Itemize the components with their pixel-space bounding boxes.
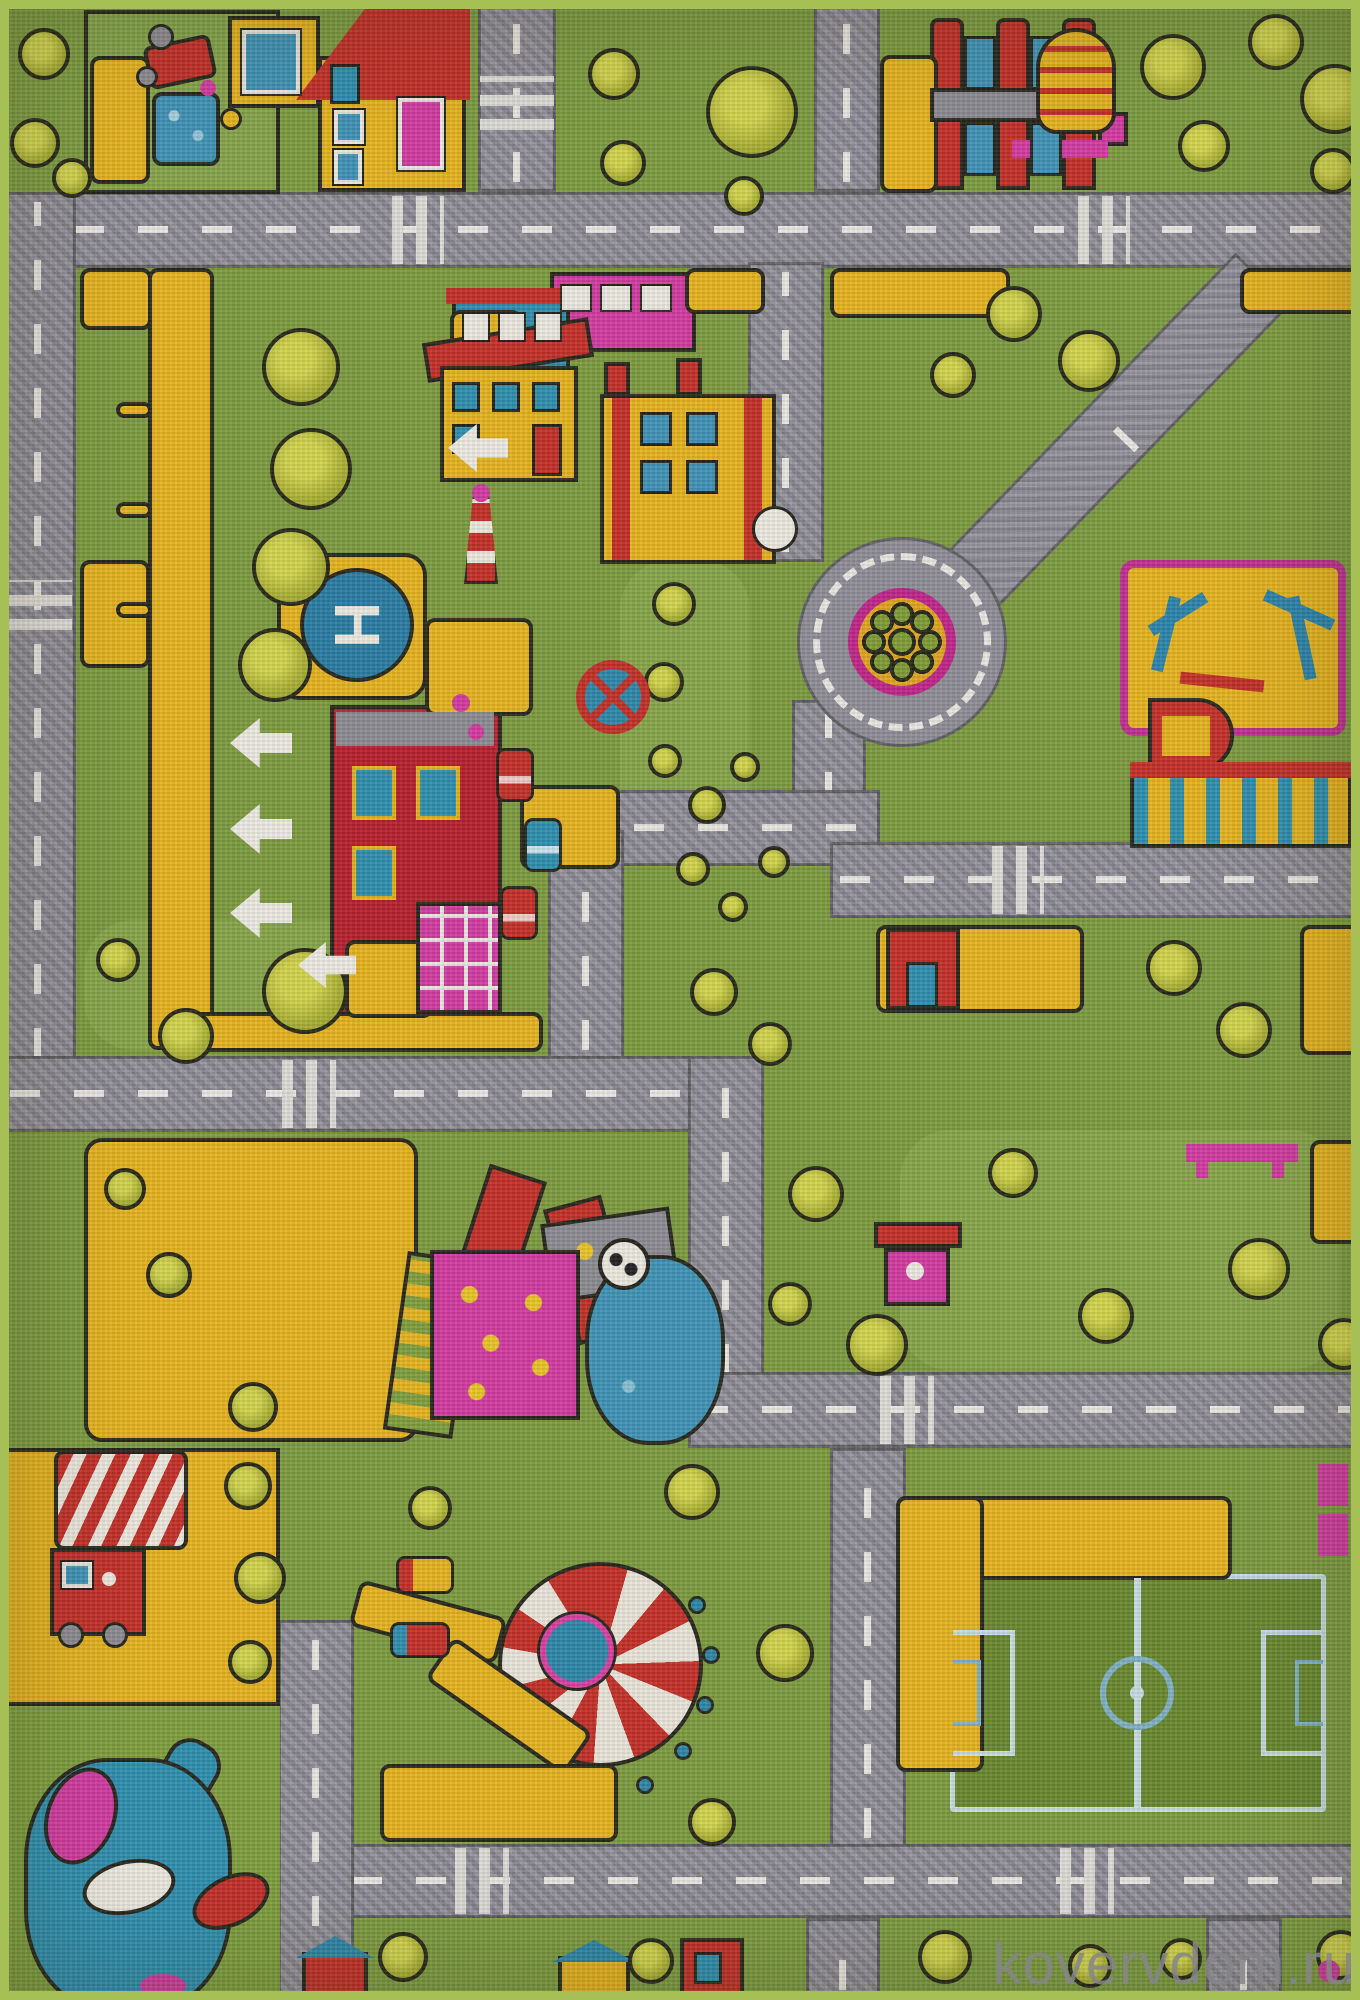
pink-zoo-house	[430, 1250, 580, 1420]
window	[464, 314, 488, 340]
tree-icon	[1078, 1288, 1134, 1344]
arch-opening	[1162, 716, 1210, 756]
chimney	[676, 358, 702, 396]
window	[640, 460, 672, 494]
tree-icon	[676, 852, 710, 886]
no-stopping-sign-icon	[576, 660, 650, 734]
wheel	[102, 1622, 128, 1648]
bench-leg	[1272, 1160, 1284, 1178]
tree-icon	[1058, 330, 1120, 392]
tree-icon	[930, 352, 976, 398]
arrow-left-icon	[230, 804, 292, 854]
pink-strip	[1318, 1464, 1348, 1506]
tree-icon	[1146, 940, 1202, 996]
sand-patch	[1300, 925, 1360, 1055]
tree-icon	[1140, 34, 1206, 100]
carousel-dot	[674, 1742, 692, 1760]
crosswalk	[480, 76, 554, 130]
tree-icon	[706, 66, 798, 158]
flower	[200, 80, 216, 96]
tree-icon	[158, 1008, 214, 1064]
lighthouse-top	[472, 484, 490, 502]
pink-annex	[416, 902, 502, 1014]
tree-icon	[96, 938, 140, 982]
tree-icon	[1248, 14, 1304, 70]
tree-icon	[730, 752, 760, 782]
window	[686, 460, 718, 494]
crosswalk	[880, 1376, 934, 1444]
window	[532, 382, 560, 412]
sand-patch	[1240, 268, 1360, 314]
window	[492, 382, 520, 412]
tree-icon	[652, 582, 696, 626]
tree-icon	[1178, 120, 1230, 172]
sand-patch	[425, 618, 533, 716]
road-left	[0, 192, 76, 1132]
sand-patch	[830, 268, 1010, 318]
road	[830, 1448, 906, 1848]
road-top	[0, 192, 1360, 268]
tree-icon	[10, 118, 60, 168]
window	[536, 314, 560, 340]
sand-patch	[165, 1012, 543, 1052]
tree-icon	[690, 968, 738, 1016]
sand-patch	[116, 502, 152, 518]
tiny-house	[558, 1956, 630, 2000]
elephant-toe	[140, 1974, 186, 1998]
tree-icon	[378, 1932, 428, 1982]
door	[532, 424, 562, 476]
window	[964, 122, 996, 176]
flower	[468, 724, 484, 740]
tree-icon	[756, 1624, 814, 1682]
carousel-dot	[688, 1596, 706, 1614]
tree-icon	[648, 744, 682, 778]
door	[398, 98, 444, 170]
tree-icon	[986, 286, 1042, 342]
column-building	[1130, 770, 1352, 848]
road-middle	[830, 842, 1360, 918]
goal-box	[1295, 1660, 1323, 1726]
window	[452, 382, 480, 412]
carousel-dot	[636, 1776, 654, 1794]
toy-car	[524, 818, 562, 872]
window	[242, 30, 300, 94]
window	[352, 846, 396, 900]
play-rug-photo: H	[0, 0, 1360, 2000]
tree-icon	[228, 1640, 272, 1684]
window	[602, 286, 630, 310]
sand-patch	[148, 268, 214, 1050]
carousel-dot	[702, 1646, 720, 1664]
flower	[452, 694, 470, 712]
tree-icon	[758, 846, 790, 878]
sand-patch	[1310, 1140, 1360, 1244]
crosswalk	[282, 1060, 336, 1128]
roundabout-island	[848, 588, 956, 696]
window	[694, 1952, 722, 1984]
tree-icon	[1300, 64, 1360, 134]
beehive-dome	[1036, 28, 1116, 134]
tree-icon	[146, 1252, 192, 1298]
tree-icon	[588, 48, 640, 100]
tree-icon	[788, 1166, 844, 1222]
wagon-dot	[102, 1572, 116, 1586]
tree-icon	[270, 428, 352, 510]
goal-box	[953, 1660, 981, 1726]
center-spot	[1130, 1686, 1144, 1700]
tractor-wheel	[136, 66, 158, 88]
crosswalk	[455, 1848, 509, 1914]
road	[806, 1918, 880, 2000]
tree-icon	[104, 1168, 146, 1210]
circus-canopy	[54, 1450, 188, 1550]
tree-icon	[718, 892, 748, 922]
lighthouse	[464, 496, 498, 584]
window	[352, 766, 396, 820]
tree-icon	[52, 158, 92, 198]
window	[334, 150, 362, 184]
tree-icon	[238, 628, 312, 702]
tree-icon	[644, 662, 684, 702]
window	[964, 36, 996, 90]
wheel	[58, 1622, 84, 1648]
ball-icon	[598, 1238, 650, 1290]
arrow-left-icon	[230, 718, 292, 768]
road-bottom	[278, 1844, 1360, 1918]
tree-icon	[1228, 1238, 1290, 1300]
toy-car	[390, 1622, 450, 1658]
road	[0, 1056, 764, 1132]
tree-icon	[688, 1798, 736, 1846]
window	[562, 286, 590, 310]
carousel-hub	[540, 1614, 614, 1688]
tree-icon	[724, 176, 764, 216]
flower	[220, 108, 242, 130]
window	[640, 412, 672, 446]
tree-icon	[1310, 148, 1356, 194]
kiosk-window	[906, 1262, 924, 1280]
roof-band	[446, 288, 576, 304]
tree-icon	[234, 1552, 286, 1604]
tree-icon	[748, 1022, 792, 1066]
tree-icon	[1216, 1002, 1272, 1058]
crosswalk	[992, 846, 1044, 914]
tree-icon	[688, 786, 726, 824]
tree-icon	[18, 28, 70, 80]
sand-patch	[116, 402, 152, 418]
pond	[152, 92, 220, 166]
window	[642, 286, 670, 310]
tree-icon	[600, 140, 646, 186]
toy-car	[500, 886, 538, 940]
helipad-letter: H	[320, 602, 394, 648]
door	[906, 962, 938, 1008]
crosswalk	[1078, 196, 1130, 264]
tree-icon	[988, 1148, 1038, 1198]
window	[330, 64, 360, 104]
tree-icon	[628, 1938, 674, 1984]
tree-icon	[262, 328, 340, 406]
toy-car	[496, 748, 534, 802]
tree-icon	[224, 1462, 272, 1510]
bench-leg	[1196, 1160, 1208, 1178]
tree-icon	[252, 528, 330, 606]
sand-patch	[880, 55, 938, 193]
tractor-wheel	[148, 24, 174, 50]
house-roof	[552, 1940, 636, 1962]
window	[334, 110, 364, 144]
sand-patch	[80, 268, 152, 330]
tree-icon	[768, 1282, 812, 1326]
tiny-house	[302, 1952, 368, 2000]
watermark: kovervdom.ru	[993, 1931, 1356, 1998]
roof-band	[1130, 762, 1352, 778]
pink-strip	[1318, 1514, 1348, 1556]
tree-icon	[846, 1314, 908, 1376]
pillar	[612, 398, 630, 560]
tree-icon	[1318, 1318, 1360, 1370]
window	[686, 412, 718, 446]
road	[814, 0, 880, 192]
crosswalk	[1060, 1848, 1114, 1914]
crosswalk	[392, 196, 444, 264]
clock-icon	[752, 506, 798, 552]
window	[62, 1562, 92, 1588]
window	[416, 766, 460, 820]
crosswalk	[4, 580, 72, 630]
kiosk-roof	[874, 1222, 962, 1248]
tree-icon	[664, 1464, 720, 1520]
chimney	[604, 362, 630, 396]
carousel-dot	[696, 1696, 714, 1714]
sand-patch	[116, 602, 152, 618]
window	[500, 314, 524, 340]
toy-car	[396, 1556, 454, 1594]
tree-icon	[228, 1382, 278, 1432]
sand-patch	[685, 268, 765, 314]
house-roof	[296, 8, 470, 100]
sand-patch	[380, 1764, 618, 1842]
road	[688, 1372, 1360, 1448]
tree-icon	[408, 1486, 452, 1530]
tree-icon	[918, 1930, 972, 1984]
